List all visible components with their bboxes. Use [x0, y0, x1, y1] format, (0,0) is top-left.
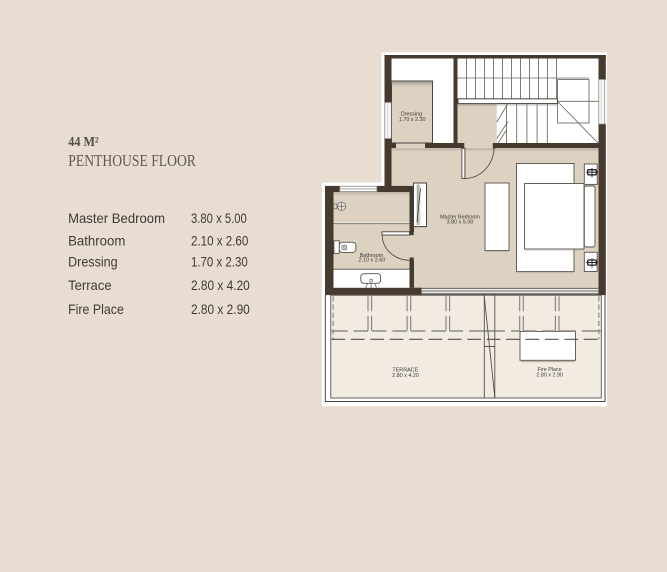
svg-text:2.10 x 2.60: 2.10 x 2.60 [359, 258, 386, 264]
svg-text:3.80 x 5.00: 3.80 x 5.00 [191, 210, 247, 226]
svg-text:Bathroom: Bathroom [68, 232, 125, 248]
svg-text:Terrace: Terrace [68, 277, 112, 293]
svg-text:PENTHOUSE FLOOR: PENTHOUSE FLOOR [68, 151, 196, 170]
svg-text:Master Bedroom: Master Bedroom [68, 210, 165, 226]
svg-text:Fire Place: Fire Place [68, 301, 124, 317]
svg-text:2.80 x 2.90: 2.80 x 2.90 [191, 301, 250, 317]
svg-text:2.80 x 4.20: 2.80 x 4.20 [191, 277, 250, 293]
svg-text:44 M²: 44 M² [68, 134, 98, 149]
svg-text:1.70 x 2.30: 1.70 x 2.30 [191, 254, 248, 270]
svg-text:2.80 x 4.20: 2.80 x 4.20 [392, 373, 419, 379]
svg-text:1.70 x 2.30: 1.70 x 2.30 [399, 117, 426, 123]
svg-text:2.10 x 2.60: 2.10 x 2.60 [191, 232, 248, 248]
svg-text:2.80 x 2.90: 2.80 x 2.90 [536, 373, 563, 379]
svg-text:Dressing: Dressing [68, 254, 118, 270]
svg-text:3.80 x 5.00: 3.80 x 5.00 [447, 219, 474, 225]
